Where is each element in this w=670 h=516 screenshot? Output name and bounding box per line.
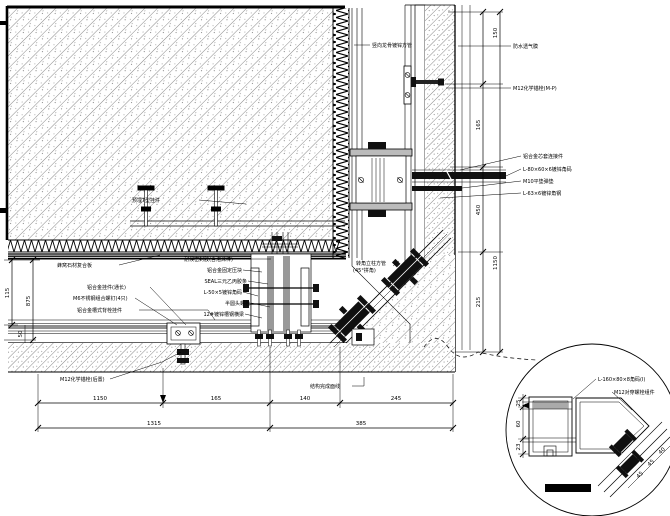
label-bottom-anchor: M12化学锚栓(后置) bbox=[60, 376, 105, 383]
dim-bottom-total-1: 1315 bbox=[147, 421, 161, 427]
cad-detail-drawing: L-160×80×8角码(Ⅰ) M12对穿螺栓组件 25 60 23 45 45… bbox=[0, 0, 670, 516]
label-left-4: 铝合金槽式背栓挂件 bbox=[77, 307, 122, 314]
small-corner-bracket bbox=[352, 329, 374, 345]
drawing-canvas: L-160×80×8角码(Ⅰ) M12对穿螺栓组件 25 60 23 45 45… bbox=[0, 0, 670, 516]
label-center-3: SEAL三元乙丙胶条 bbox=[204, 278, 247, 285]
detail-dim-60: 60 bbox=[516, 420, 522, 427]
label-center-1: 耐候密封胶(含泡沫棒) bbox=[184, 256, 233, 263]
label-right-mid-4: L-63×6镀锌角钢 bbox=[523, 190, 561, 197]
label-floor-line: 结构完成面线 bbox=[310, 383, 340, 390]
scale-bar bbox=[545, 484, 591, 492]
concrete-slab-section bbox=[0, 6, 345, 240]
detail-circle: L-160×80×8角码(Ⅰ) M12对穿螺栓组件 25 60 23 45 45… bbox=[506, 344, 670, 516]
label-top-mullion: 竖向龙骨镀锌方管 bbox=[372, 42, 412, 49]
label-corner-1: 转角立柱方管 bbox=[356, 260, 386, 267]
dim-right-2: 450 bbox=[476, 204, 482, 215]
label-right-mid-1: 铝合金芯套连接件 bbox=[523, 153, 563, 160]
label-right-top-2: M12化学锚栓(M-P) bbox=[513, 85, 557, 92]
detail-dim-23: 23 bbox=[516, 443, 522, 450]
dim-bottom-3: 140 bbox=[300, 396, 311, 402]
label-center-5: 半圆头螺栓 bbox=[225, 300, 250, 307]
dim-right-3: 215 bbox=[476, 296, 482, 307]
label-center-2: 铝合金固定压块 bbox=[207, 267, 242, 274]
label-corner-2: (45°拼角) bbox=[353, 267, 376, 274]
label-right-top-1: 防水透气膜 bbox=[513, 43, 538, 50]
dim-bottom-1: 1150 bbox=[93, 396, 107, 402]
label-center-6: 12#镀锌槽钢横梁 bbox=[203, 311, 244, 318]
dim-bottom-total-2: 385 bbox=[356, 421, 367, 427]
label-left-2: 铝合金挂件(通长) bbox=[87, 284, 126, 291]
label-left-1: 蜂窝石材复合板 bbox=[57, 262, 92, 269]
detail-square-tube bbox=[522, 397, 578, 456]
label-center-4: L-50×5镀锌角码 bbox=[204, 289, 242, 296]
slab-concrete-hatch bbox=[8, 8, 333, 240]
detail-dim-25: 25 bbox=[516, 399, 522, 406]
dim-left-small: 50 bbox=[18, 330, 24, 337]
vertical-stone-panel bbox=[333, 8, 362, 260]
detail-label-bolt: M12对穿螺栓组件 bbox=[614, 389, 655, 396]
dim-right-outer: 1150 bbox=[493, 256, 499, 270]
dim-bottom-2: 165 bbox=[211, 396, 222, 402]
dim-left-inner: 115 bbox=[5, 287, 11, 298]
detail-label-angle: L-160×80×8角码(Ⅰ) bbox=[598, 376, 645, 383]
dim-right-outer-top: 150 bbox=[493, 27, 499, 38]
bottom-wall-hatch bbox=[8, 343, 455, 372]
label-slab-hanger: 预埋T型挂件 bbox=[132, 197, 160, 204]
dim-right-1: 165 bbox=[476, 119, 482, 130]
bottom-wall-section bbox=[8, 343, 455, 372]
label-left-3: M6不锈钢组合螺钉(4只) bbox=[73, 295, 128, 302]
left-dimensions: 115 875 50 bbox=[4, 257, 40, 343]
chemical-anchor-bolt bbox=[412, 172, 506, 179]
label-right-mid-2: L-80×60×6镀锌角码 bbox=[523, 166, 572, 173]
label-right-mid-3: M10平垫弹垫 bbox=[523, 178, 554, 185]
dim-left-outer: 875 bbox=[26, 295, 32, 306]
dim-bottom-4: 245 bbox=[391, 396, 402, 402]
